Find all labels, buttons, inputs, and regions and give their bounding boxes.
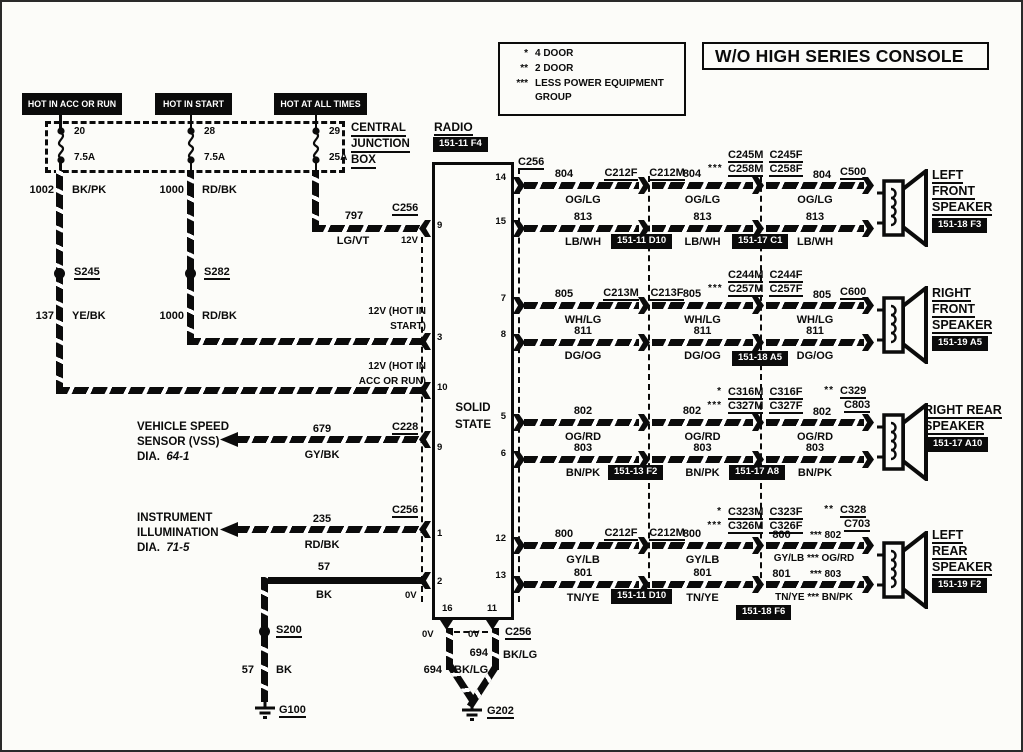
connector-cap bbox=[752, 414, 764, 431]
stars: * bbox=[702, 386, 722, 400]
speaker-name: SPEAKER bbox=[932, 200, 992, 216]
ground-g202: G202 bbox=[487, 705, 514, 719]
radio-pin: 12 bbox=[490, 533, 506, 544]
radio-pin: 8 bbox=[490, 329, 506, 340]
connector: C500 bbox=[840, 166, 866, 180]
connector-plane-dashed bbox=[421, 237, 423, 602]
illum-label-2: ILLUMINATION bbox=[137, 527, 219, 540]
speaker-icon bbox=[876, 403, 930, 481]
circuit-number: 813 bbox=[766, 211, 864, 223]
wire bbox=[524, 339, 639, 346]
wire-color: BK/PK bbox=[72, 184, 106, 196]
connector-cap bbox=[752, 297, 764, 314]
fuse-position: 20 bbox=[74, 126, 85, 137]
fuse-icon bbox=[307, 124, 325, 166]
connector: C703 bbox=[844, 518, 870, 532]
page-title: W/O HIGH SERIES CONSOLE bbox=[715, 46, 964, 67]
speaker-icon bbox=[876, 169, 930, 247]
wire-color: RD/BK bbox=[292, 539, 352, 551]
wire-color: TN/YE *** BN/PK bbox=[762, 592, 866, 603]
wire-797 bbox=[312, 170, 319, 232]
wire bbox=[766, 225, 864, 232]
connector: C316M bbox=[728, 386, 763, 400]
wire-color: OG/LG bbox=[652, 194, 753, 206]
splice-dot bbox=[185, 268, 196, 279]
splice-s245: S245 bbox=[74, 266, 100, 280]
voltage-label: 0V bbox=[468, 630, 480, 641]
wire-color: GY/LB *** OG/RD bbox=[762, 553, 866, 564]
connector-c228: C228 bbox=[392, 421, 418, 435]
connector: C323M bbox=[728, 506, 763, 520]
stars: * bbox=[702, 506, 722, 520]
connector: C258M bbox=[728, 163, 763, 177]
circuit-number: 803 bbox=[652, 442, 753, 454]
splice-dot bbox=[54, 268, 65, 279]
illum-dia: DIA. bbox=[137, 542, 160, 554]
radio-pin: 13 bbox=[490, 570, 506, 581]
connector-cap bbox=[419, 220, 431, 237]
power-label-batt: HOT AT ALL TIMES bbox=[274, 93, 367, 115]
circuit-number: 800 bbox=[524, 528, 604, 540]
wire-797 bbox=[312, 225, 422, 232]
connector: C213M bbox=[603, 287, 638, 301]
wire bbox=[524, 182, 639, 189]
circuit-number: 797 bbox=[332, 210, 376, 222]
radio-pin: 10 bbox=[437, 382, 448, 393]
circuit-number: 802 bbox=[652, 405, 732, 417]
radio-pin: 15 bbox=[490, 216, 506, 227]
wire-57 bbox=[264, 577, 422, 584]
circuit-number: 802 bbox=[792, 406, 852, 418]
legend-star-3: *** bbox=[500, 78, 528, 89]
circuit-number: 811 bbox=[652, 325, 753, 337]
speaker-name: SPEAKER bbox=[924, 419, 984, 435]
title-box: W/O HIGH SERIES CONSOLE bbox=[702, 42, 989, 70]
circuit-number: 1000 bbox=[150, 184, 184, 196]
circuit-number: 800 bbox=[754, 529, 809, 541]
splice-s200: S200 bbox=[276, 624, 302, 638]
wire bbox=[652, 419, 753, 426]
vss-dia-num: 64-1 bbox=[166, 451, 189, 463]
speaker-name: LEFT bbox=[932, 528, 963, 544]
grid-badge: 151-19 F2 bbox=[932, 578, 987, 593]
fuse-rating: 7.5A bbox=[74, 152, 95, 163]
stars: ** bbox=[814, 504, 834, 518]
radio-pin: 16 bbox=[442, 603, 453, 614]
wire-1000 bbox=[187, 170, 194, 345]
radio-pin: 9 bbox=[437, 220, 442, 231]
circuit-number: 694 bbox=[414, 664, 442, 676]
connector: C244M bbox=[728, 269, 763, 283]
radio-pin: 3 bbox=[437, 332, 442, 343]
connector: C212F bbox=[604, 527, 637, 541]
wire-color: BK/LG bbox=[503, 649, 537, 661]
ground-icon bbox=[253, 700, 277, 722]
splice-dot bbox=[259, 626, 270, 637]
circuit-number: 800 bbox=[652, 528, 732, 540]
speaker-name: SPEAKER bbox=[932, 560, 992, 576]
connector: C328 bbox=[840, 504, 866, 518]
wire bbox=[652, 182, 753, 189]
wire-color: BN/PK bbox=[766, 467, 864, 479]
circuit-number: 57 bbox=[226, 664, 254, 676]
connector-c256: C256 bbox=[505, 626, 531, 640]
power-label-acc: HOT IN ACC OR RUN bbox=[22, 93, 122, 115]
connector: C257M bbox=[728, 283, 763, 297]
circuit-number: 694 bbox=[462, 647, 488, 659]
grid-badge: 151-18 F3 bbox=[932, 218, 987, 233]
stars: *** bbox=[708, 283, 723, 294]
feed-note: START) bbox=[302, 321, 426, 332]
circuit-number: 1002 bbox=[22, 184, 54, 196]
illum-label-1: INSTRUMENT bbox=[137, 512, 212, 525]
radio-pin: 1 bbox=[437, 528, 442, 539]
feed-note: 12V (HOT IN bbox=[302, 306, 426, 317]
fuse-icon bbox=[52, 124, 70, 166]
circuit-number: 811 bbox=[766, 325, 864, 337]
speaker-name: LEFT bbox=[932, 168, 963, 184]
splice-s282: S282 bbox=[204, 266, 230, 280]
connector-cap bbox=[752, 177, 764, 194]
circuit-number: 679 bbox=[292, 423, 352, 435]
stars: ** bbox=[814, 385, 834, 399]
connector: C212F bbox=[604, 167, 637, 181]
circuit-number: 801 bbox=[524, 567, 642, 579]
speaker-name: REAR bbox=[932, 544, 967, 560]
circuit-number: 804 bbox=[524, 168, 604, 180]
wire bbox=[652, 225, 753, 232]
wire-color: YE/BK bbox=[72, 310, 106, 322]
circuit-number: 57 bbox=[302, 561, 346, 573]
wire-color: BK/LG bbox=[454, 664, 488, 676]
connector-cap bbox=[752, 334, 764, 351]
illum-dia-num: 71-5 bbox=[166, 542, 189, 554]
speaker-name: RIGHT REAR bbox=[924, 403, 1002, 419]
fuse-rating: 25A bbox=[329, 152, 347, 163]
wire-color: GY/BK bbox=[292, 449, 352, 461]
wire-color: DG/OG bbox=[766, 350, 864, 362]
connector: C327M bbox=[728, 400, 763, 414]
circuit-number: 803 bbox=[524, 442, 642, 454]
wire bbox=[652, 581, 753, 588]
wire bbox=[652, 542, 753, 549]
wire bbox=[766, 542, 864, 549]
radio-pin: 7 bbox=[490, 293, 506, 304]
wire-color: OG/LG bbox=[524, 194, 642, 206]
wire-color: RD/BK bbox=[202, 184, 237, 196]
wire bbox=[766, 182, 864, 189]
legend-text-2: 2 DOOR bbox=[535, 63, 573, 74]
wire-color: LB/WH bbox=[766, 236, 864, 248]
cjb-label-2: JUNCTION bbox=[351, 138, 410, 153]
circuit-number: 805 bbox=[524, 288, 604, 300]
speaker-name: FRONT bbox=[932, 302, 975, 318]
wire-color: GY/LB bbox=[524, 554, 642, 566]
legend-text-1: 4 DOOR bbox=[535, 48, 573, 59]
radio-pin: 14 bbox=[490, 172, 506, 183]
wire bbox=[524, 456, 639, 463]
radio-pin: 5 bbox=[490, 411, 506, 422]
wire-1000-start bbox=[187, 338, 422, 345]
radio-grid-badge: 151-11 F4 bbox=[433, 137, 488, 152]
circuit-number: 813 bbox=[524, 211, 642, 223]
circuit-number: 802 bbox=[524, 405, 642, 417]
connector: C245F bbox=[769, 149, 802, 163]
circuit-number: 801 bbox=[652, 567, 753, 579]
circuit-number: 137 bbox=[22, 310, 54, 322]
wire-color: DG/OG bbox=[524, 350, 642, 362]
voltage-label: 0V bbox=[405, 591, 417, 602]
wire-1002 bbox=[56, 170, 63, 394]
connector-c256: C256 bbox=[392, 202, 418, 216]
voltage-label: 0V bbox=[422, 630, 434, 641]
wire bbox=[524, 302, 639, 309]
grid-badge: 151-18 F6 bbox=[736, 605, 791, 620]
wire bbox=[766, 339, 864, 346]
speaker-name: SPEAKER bbox=[932, 318, 992, 334]
wire-color: LG/VT bbox=[328, 235, 378, 247]
speaker-icon bbox=[876, 531, 930, 609]
wire-color: BK bbox=[302, 589, 346, 601]
cjb-label-3: BOX bbox=[351, 154, 376, 169]
wire bbox=[524, 581, 639, 588]
circuit-number: 811 bbox=[524, 325, 642, 337]
connector: C316F bbox=[769, 386, 802, 400]
feed-note: 12V (HOT IN bbox=[302, 361, 426, 372]
circuit-number: 1000 bbox=[150, 310, 184, 322]
wire-57 bbox=[261, 577, 268, 702]
wire bbox=[524, 542, 639, 549]
wire bbox=[766, 302, 864, 309]
wire-color: RD/BK bbox=[202, 310, 237, 322]
radio-pin: 9 bbox=[437, 442, 442, 453]
wire bbox=[766, 456, 864, 463]
wire bbox=[652, 302, 753, 309]
speaker-name: FRONT bbox=[932, 184, 975, 200]
connector: C600 bbox=[840, 286, 866, 300]
vss-label-1: VEHICLE SPEED bbox=[137, 421, 229, 434]
legend-star-1: * bbox=[500, 48, 528, 59]
circuit-number: 803 bbox=[766, 442, 864, 454]
connector: C803 bbox=[844, 399, 870, 413]
radio-title: RADIO bbox=[434, 121, 473, 136]
vss-dia: DIA. bbox=[137, 451, 160, 463]
legend-star-2: ** bbox=[500, 63, 528, 74]
circuit-number: 235 bbox=[292, 513, 352, 525]
wire-color: GY/LB bbox=[652, 554, 753, 566]
ground-icon bbox=[460, 702, 484, 724]
wire-137-acc bbox=[56, 387, 422, 394]
fuse-icon bbox=[182, 124, 200, 166]
wire bbox=[524, 225, 639, 232]
grid-badge: 151-19 A5 bbox=[932, 336, 988, 351]
wire-color: OG/LG bbox=[766, 194, 864, 206]
legend-text-3: LESS POWER EQUIPMENT bbox=[535, 78, 664, 89]
fuse-rating: 7.5A bbox=[204, 152, 225, 163]
circuit-number: *** 803 bbox=[810, 569, 841, 580]
connector: C244F bbox=[769, 269, 802, 283]
wire-235 bbox=[236, 526, 422, 533]
circuit-number: *** 802 bbox=[810, 530, 841, 541]
circuit-number: 813 bbox=[652, 211, 753, 223]
speaker-icon bbox=[876, 286, 930, 364]
speaker-name: RIGHT bbox=[932, 286, 971, 302]
ground-g100: G100 bbox=[279, 704, 306, 718]
connector: C245M bbox=[728, 149, 763, 163]
cjb-label-1: CENTRAL bbox=[351, 122, 406, 137]
connector: C323F bbox=[769, 506, 802, 520]
power-label-start: HOT IN START bbox=[155, 93, 232, 115]
wire-679 bbox=[236, 436, 422, 443]
voltage-label: 12V bbox=[401, 236, 418, 247]
connector-c256: C256 bbox=[392, 504, 418, 518]
wire-color: BK bbox=[276, 664, 292, 676]
grid-badge: 151-17 A10 bbox=[927, 437, 988, 452]
wire bbox=[652, 456, 753, 463]
connector: C329 bbox=[840, 385, 866, 399]
fuse-position: 28 bbox=[204, 126, 215, 137]
radio-pin: 11 bbox=[487, 603, 497, 614]
wiring-diagram: * 4 DOOR ** 2 DOOR *** LESS POWER EQUIPM… bbox=[0, 0, 1023, 752]
circuit-number: 801 bbox=[754, 568, 809, 580]
fuse-position: 29 bbox=[329, 126, 340, 137]
legend-text-3b: GROUP bbox=[535, 92, 572, 103]
wire-color: TN/YE bbox=[652, 592, 753, 604]
stars bbox=[702, 269, 722, 283]
vss-label-2: SENSOR (VSS) bbox=[137, 436, 219, 449]
wire bbox=[652, 339, 753, 346]
feed-note: ACC OR RUN) bbox=[302, 376, 426, 387]
wire bbox=[766, 581, 864, 588]
stars bbox=[702, 149, 722, 163]
stars: *** bbox=[708, 163, 723, 174]
wire bbox=[766, 419, 864, 426]
wire bbox=[524, 419, 639, 426]
wire-694 bbox=[492, 628, 499, 670]
radio-pin: 2 bbox=[437, 576, 442, 587]
radio-pin: 6 bbox=[490, 448, 506, 459]
